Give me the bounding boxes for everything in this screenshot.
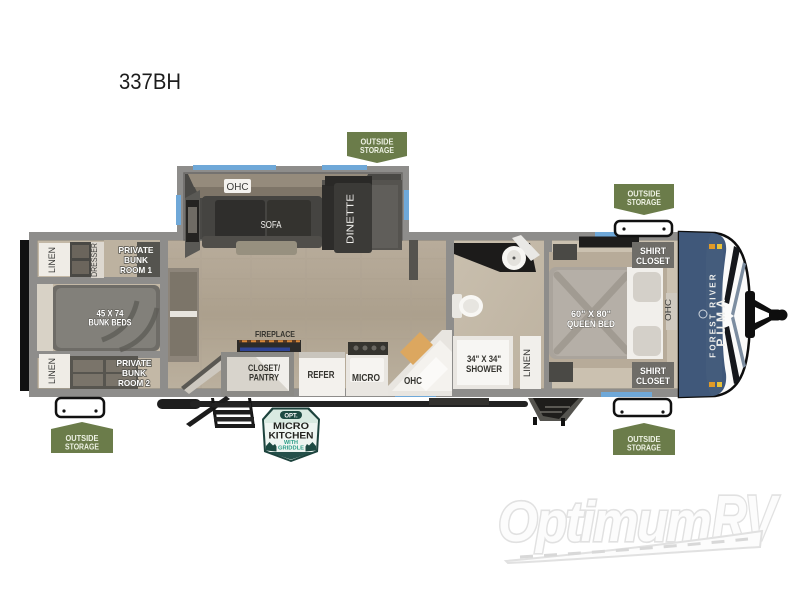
svg-text:STORAGE: STORAGE	[360, 145, 394, 155]
svg-text:LINEN: LINEN	[47, 247, 57, 273]
svg-text:BUNK: BUNK	[124, 255, 149, 265]
svg-text:CLOSET: CLOSET	[636, 256, 670, 266]
svg-text:GRIDDLE: GRIDDLE	[278, 446, 304, 452]
svg-text:LINEN: LINEN	[47, 358, 57, 384]
svg-text:DINETTE: DINETTE	[346, 194, 357, 244]
svg-text:OHC: OHC	[663, 299, 673, 321]
svg-text:SOFA: SOFA	[261, 219, 282, 231]
svg-text:ROOM 1: ROOM 1	[120, 265, 152, 275]
svg-text:QUEEN BED: QUEEN BED	[567, 319, 615, 330]
svg-text:OHC: OHC	[404, 376, 422, 387]
svg-text:PANTRY: PANTRY	[249, 373, 280, 384]
svg-text:REFER: REFER	[308, 370, 336, 381]
svg-text:SHOWER: SHOWER	[466, 364, 502, 374]
svg-text:OHC: OHC	[227, 182, 249, 193]
svg-text:BUNK BEDS: BUNK BEDS	[89, 318, 132, 329]
svg-text:OPT.: OPT.	[284, 414, 298, 420]
svg-text:CLOSET: CLOSET	[636, 376, 670, 386]
svg-text:SHIRT: SHIRT	[640, 246, 666, 256]
svg-text:MICRO: MICRO	[352, 373, 380, 384]
svg-text:STORAGE: STORAGE	[627, 197, 661, 207]
svg-text:337BH: 337BH	[119, 69, 181, 94]
svg-text:PUMA: PUMA	[714, 295, 728, 346]
svg-text:LINEN: LINEN	[522, 349, 532, 377]
svg-text:PRIVATE: PRIVATE	[117, 358, 152, 368]
svg-text:STORAGE: STORAGE	[65, 442, 99, 452]
svg-text:ROOM 2: ROOM 2	[118, 378, 150, 388]
svg-text:DRESSER: DRESSER	[89, 243, 99, 277]
svg-text:FIREPLACE: FIREPLACE	[255, 329, 295, 339]
svg-text:SHIRT: SHIRT	[640, 366, 666, 376]
svg-text:34" X 34": 34" X 34"	[467, 354, 501, 364]
svg-text:PRIVATE: PRIVATE	[119, 245, 154, 255]
svg-text:STORAGE: STORAGE	[627, 443, 661, 453]
svg-text:BUNK: BUNK	[122, 368, 147, 378]
